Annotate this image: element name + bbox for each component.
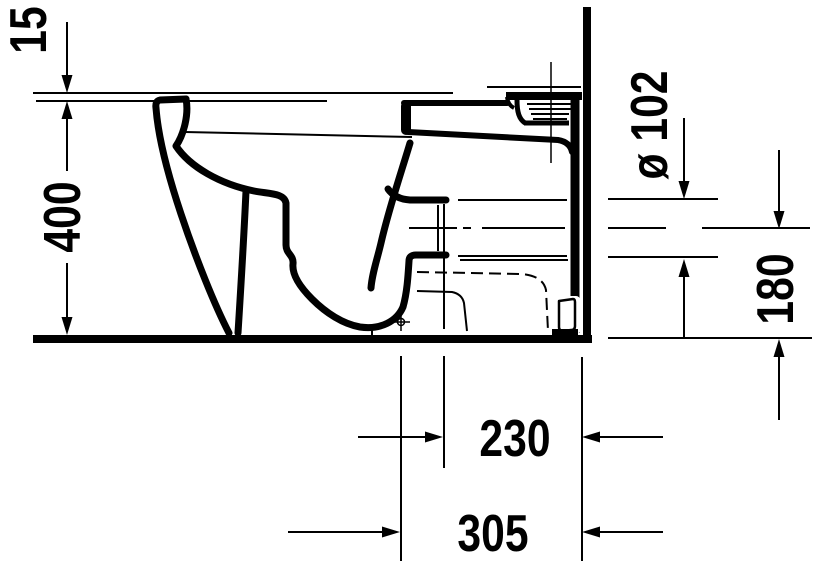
dim-outlet-center-to-wall-label: 305 — [457, 505, 528, 563]
outlet-spigot — [552, 296, 580, 334]
svg-text:180: 180 — [747, 253, 805, 324]
dim-height-label: 400 — [34, 181, 92, 252]
wall-section — [583, 7, 591, 343]
dim-outlet-height-label: 180 — [747, 253, 805, 324]
svg-text:305: 305 — [457, 505, 528, 563]
flush-flange — [506, 92, 582, 100]
dim-outlet-diameter-label: ø 102 — [621, 70, 679, 179]
svg-text:400: 400 — [34, 181, 92, 252]
dim-seat-gap-label: 15 — [0, 6, 58, 53]
svg-text:15: 15 — [0, 6, 58, 53]
svg-text:ø 102: ø 102 — [621, 70, 679, 179]
floor-section — [33, 335, 592, 343]
svg-text:230: 230 — [479, 410, 550, 468]
drawing-canvas: 15 400 ø 102 180 — [0, 0, 817, 567]
spigot-outline — [559, 299, 575, 331]
toilet-section-drawing: 15 400 ø 102 180 — [0, 0, 817, 567]
dim-outlet-face-to-wall-label: 230 — [479, 410, 550, 468]
